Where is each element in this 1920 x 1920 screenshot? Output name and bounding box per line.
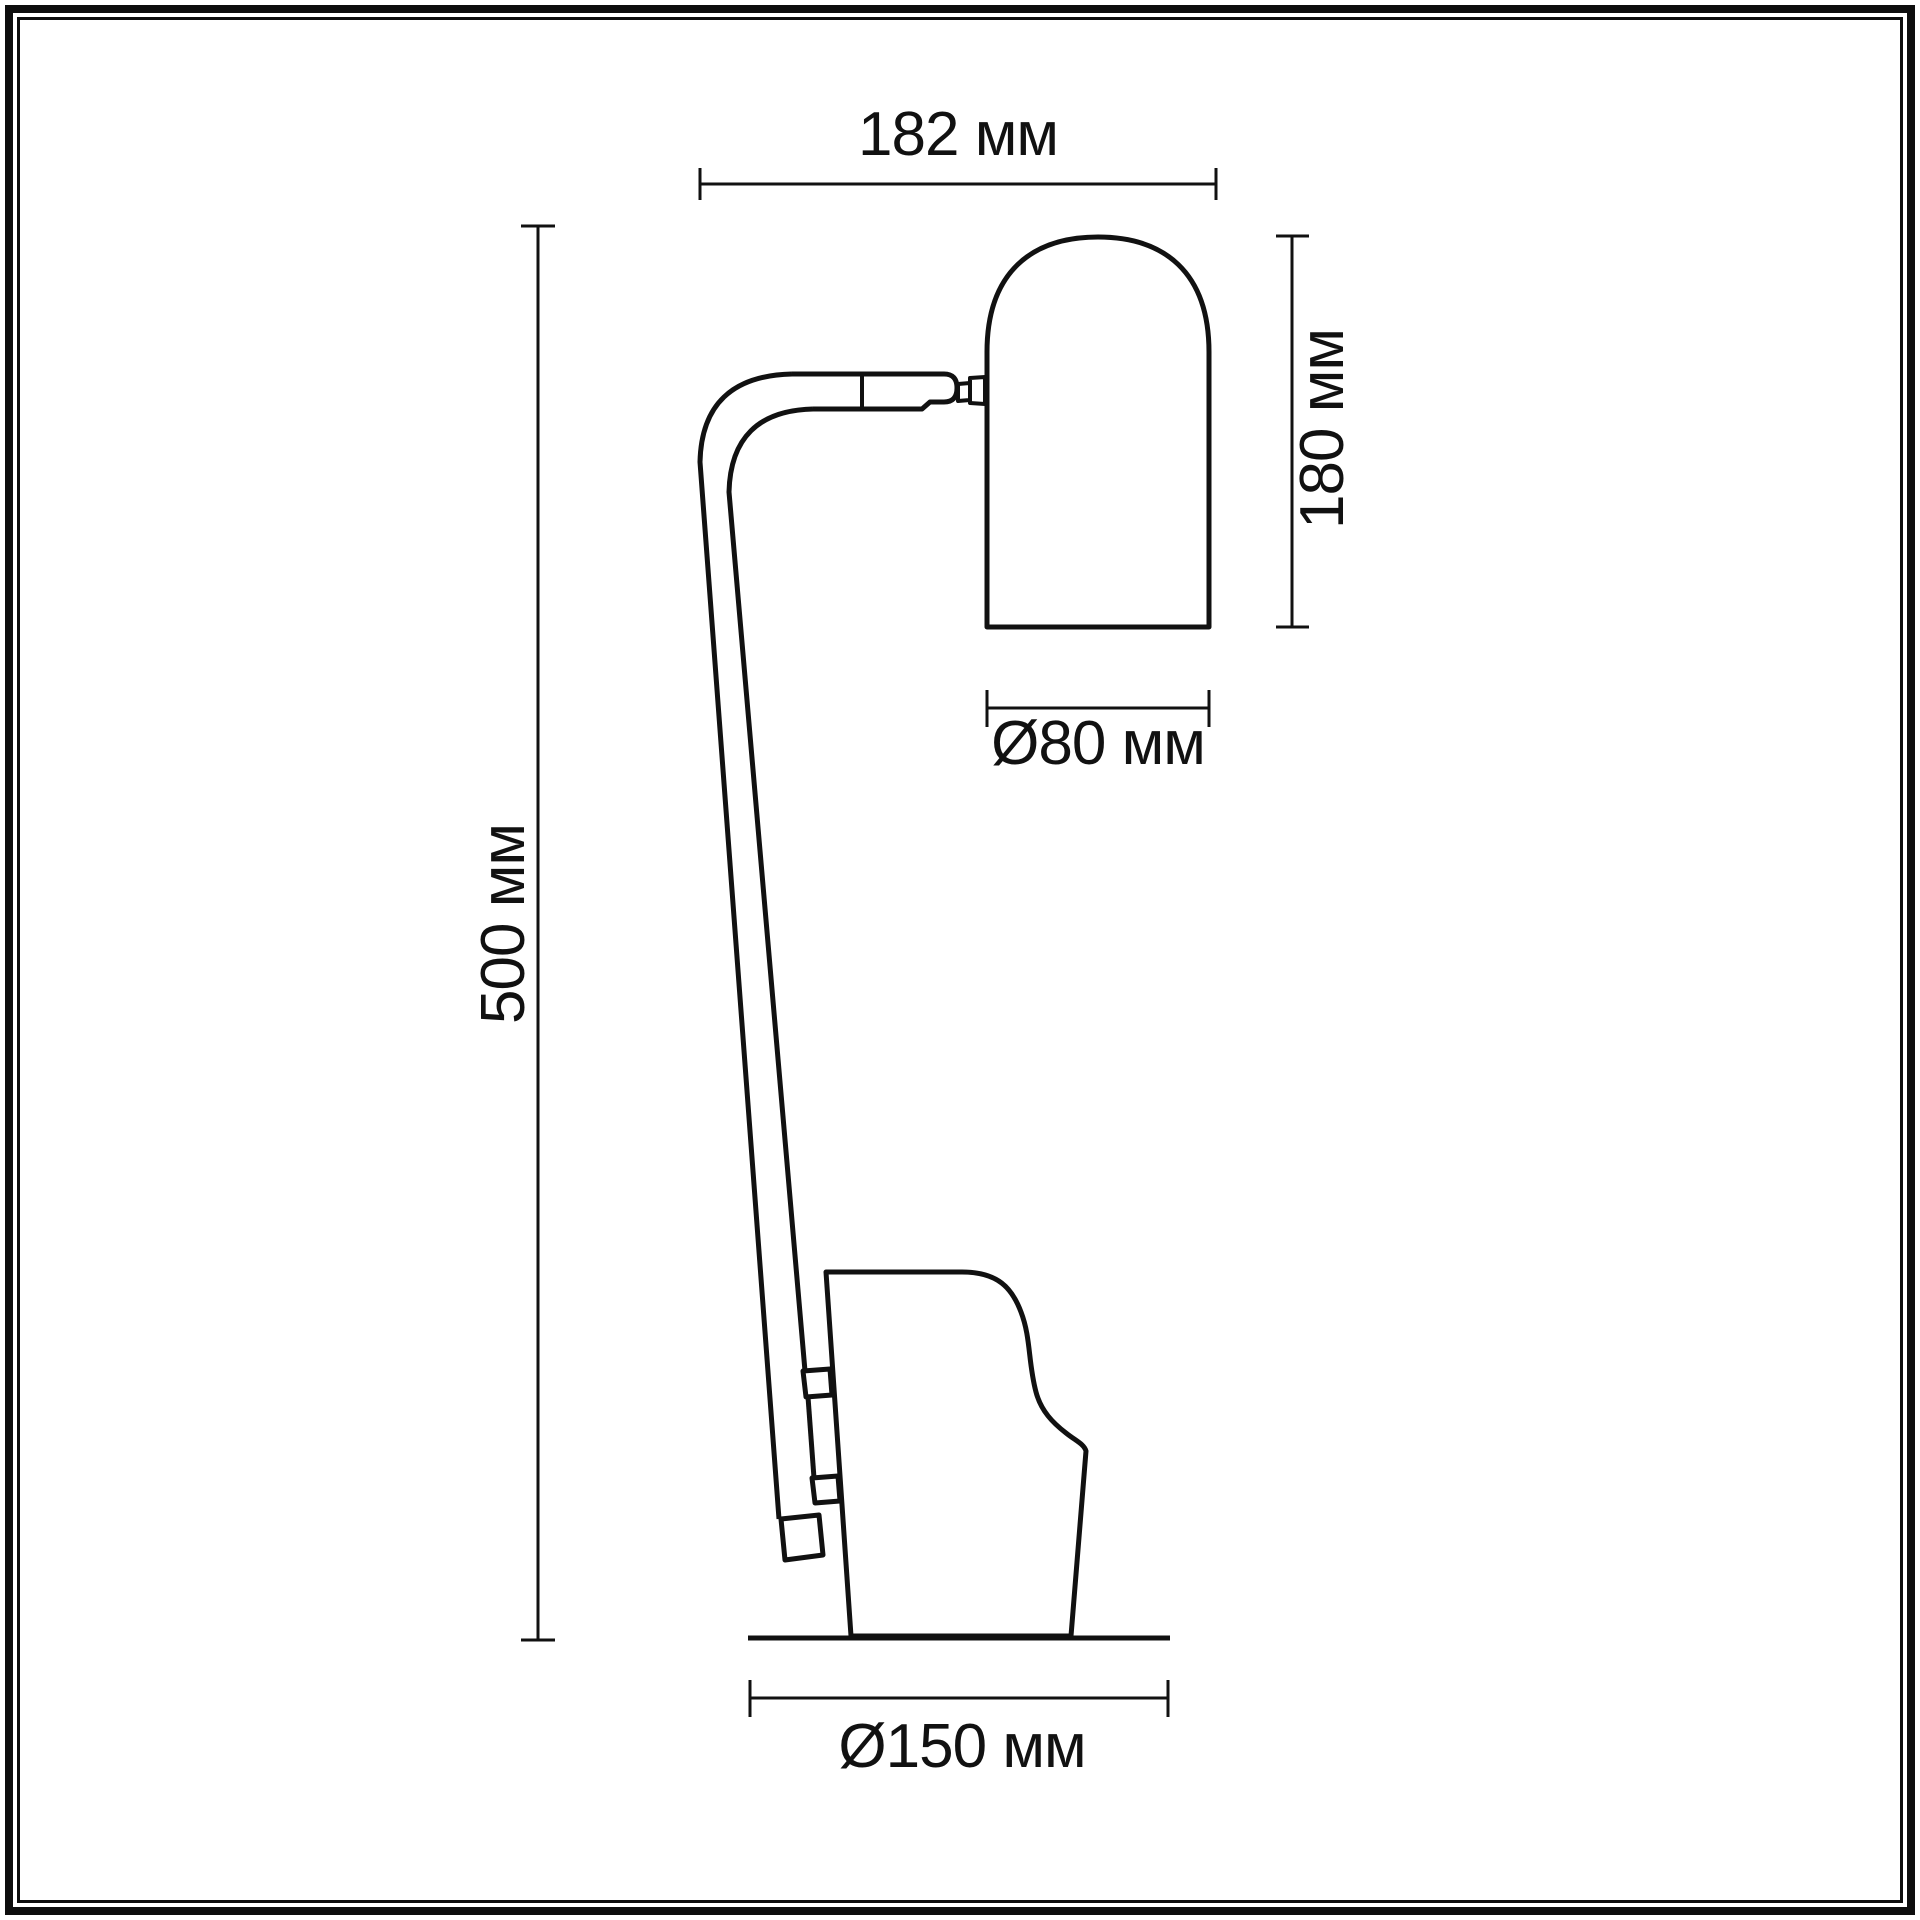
- stem-end-cap: [781, 1515, 823, 1560]
- arm-inner-line: [729, 409, 813, 1371]
- dim-line-shade-span-top: [700, 168, 1216, 200]
- dim-label-base-diameter: Ø150 мм: [838, 1716, 1085, 1778]
- connector-flange: [970, 377, 985, 404]
- clamp-bar-lower: [812, 1476, 840, 1503]
- dim-label-total-height: 500 мм: [473, 824, 535, 1024]
- stem-lower-segment: [808, 1397, 814, 1478]
- lamp-shade-outline: [987, 237, 1209, 627]
- dim-label-shade-diameter: Ø80 мм: [991, 713, 1205, 775]
- arm-outer-line: [700, 374, 792, 1519]
- dim-label-shade-span-top: 182 мм: [858, 104, 1058, 166]
- drawing-canvas: 182 мм 180 мм Ø80 мм 500 мм Ø150 мм: [0, 0, 1920, 1920]
- base-body-outline: [826, 1272, 1086, 1636]
- dim-label-shade-height: 180 мм: [1292, 329, 1354, 529]
- lamp-technical-drawing: [0, 0, 1920, 1920]
- clamp-bar-upper: [803, 1369, 832, 1397]
- arm-tube-outline: [792, 374, 957, 409]
